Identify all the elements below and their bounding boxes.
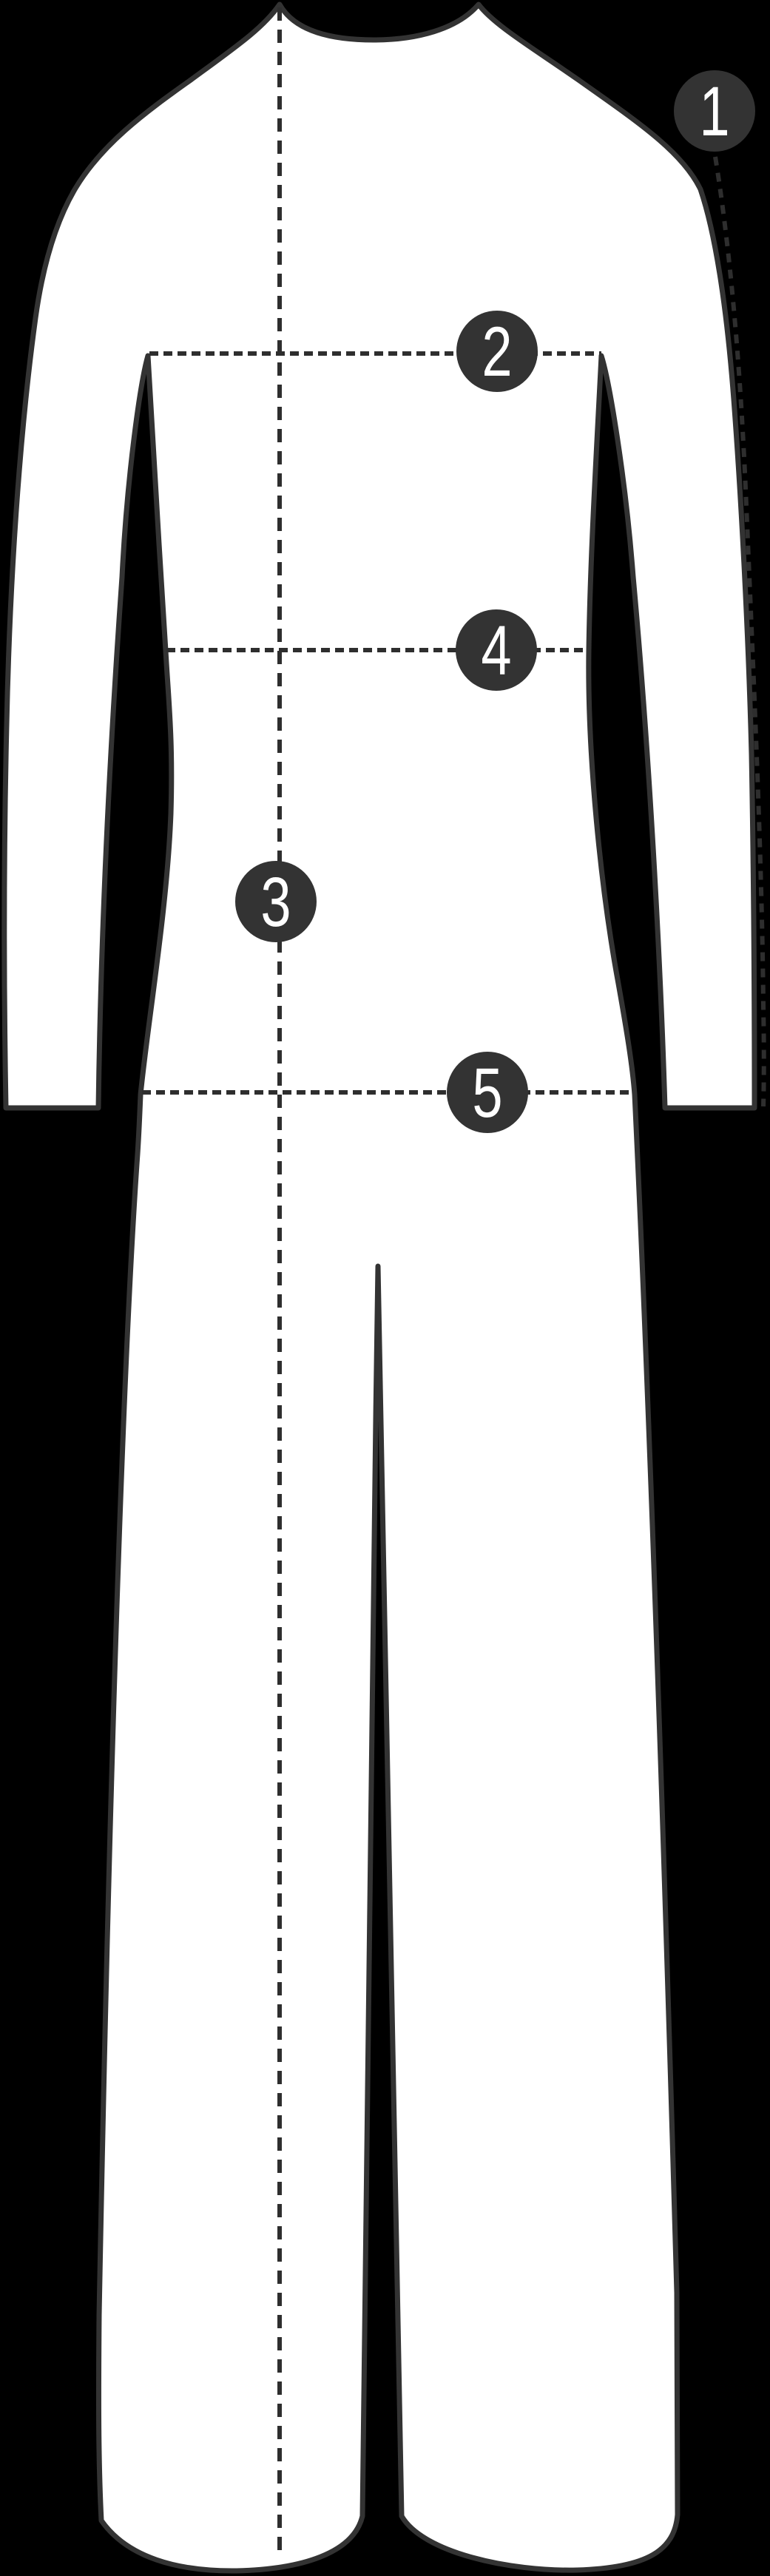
marker-2-number: 2 [482,313,512,391]
marker-5-number: 5 [472,1054,502,1132]
marker-5: 5 [447,1052,528,1133]
marker-2: 2 [456,311,538,392]
marker-3-number: 3 [260,863,291,942]
measurement-diagram-stage: 1 2 3 4 5 [0,0,770,2576]
marker-1-number: 1 [699,72,729,151]
marker-1: 1 [674,70,755,152]
marker-4: 4 [456,609,537,691]
jumpsuit-measurement-diagram: 1 2 3 4 5 [0,0,770,2576]
jumpsuit-silhouette [4,4,754,2571]
marker-3: 3 [235,861,317,942]
marker-4-number: 4 [481,612,511,690]
